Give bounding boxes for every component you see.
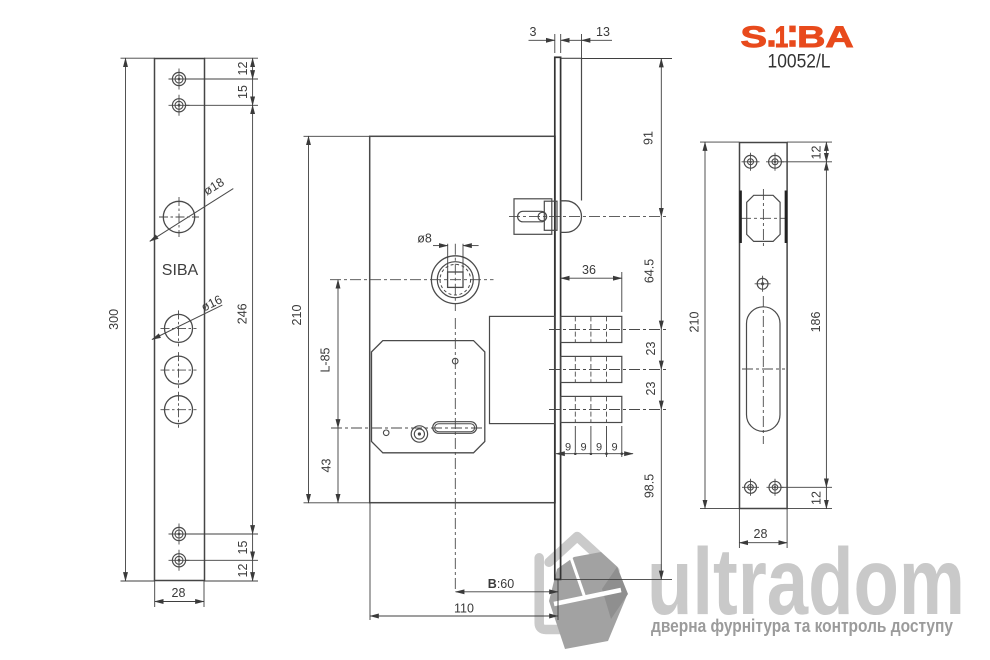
svg-text:BA: BA <box>797 21 854 54</box>
svg-text:210: 210 <box>290 305 304 326</box>
svg-text:ø8: ø8 <box>417 232 432 246</box>
svg-text:64.5: 64.5 <box>643 259 657 283</box>
svg-text:36: 36 <box>582 263 596 277</box>
svg-text:9: 9 <box>565 442 571 454</box>
svg-text:43: 43 <box>320 459 334 473</box>
svg-text:12: 12 <box>810 491 824 505</box>
svg-text:12: 12 <box>236 564 250 578</box>
svg-text:12: 12 <box>236 62 250 76</box>
svg-text:28: 28 <box>754 527 768 541</box>
svg-text:дверна фурнітура та контроль д: дверна фурнітура та контроль доступу <box>651 616 953 636</box>
svg-text:186: 186 <box>809 312 823 333</box>
svg-text:300: 300 <box>107 309 121 330</box>
svg-text:1: 1 <box>775 21 789 54</box>
svg-text:SIBA: SIBA <box>162 262 199 279</box>
svg-text:9: 9 <box>611 442 617 454</box>
svg-text:28: 28 <box>172 586 186 600</box>
svg-text:15: 15 <box>236 85 250 99</box>
svg-text:110: 110 <box>454 602 474 616</box>
svg-text:91: 91 <box>642 131 656 145</box>
svg-text:246: 246 <box>236 303 250 324</box>
svg-text:9: 9 <box>580 442 586 454</box>
svg-text:13: 13 <box>596 25 610 39</box>
svg-text:S: S <box>741 21 768 54</box>
svg-text:9: 9 <box>596 442 602 454</box>
svg-text:3: 3 <box>530 25 537 39</box>
svg-text:23: 23 <box>644 382 658 396</box>
svg-text:15: 15 <box>236 541 250 555</box>
svg-text:98.5: 98.5 <box>643 474 657 498</box>
svg-text:210: 210 <box>688 312 702 333</box>
svg-text:12: 12 <box>810 146 824 160</box>
svg-text:L-85: L-85 <box>319 347 333 372</box>
svg-text:B:60: B:60 <box>488 577 514 591</box>
svg-text:23: 23 <box>644 342 658 356</box>
svg-text:10052/L: 10052/L <box>768 51 831 73</box>
